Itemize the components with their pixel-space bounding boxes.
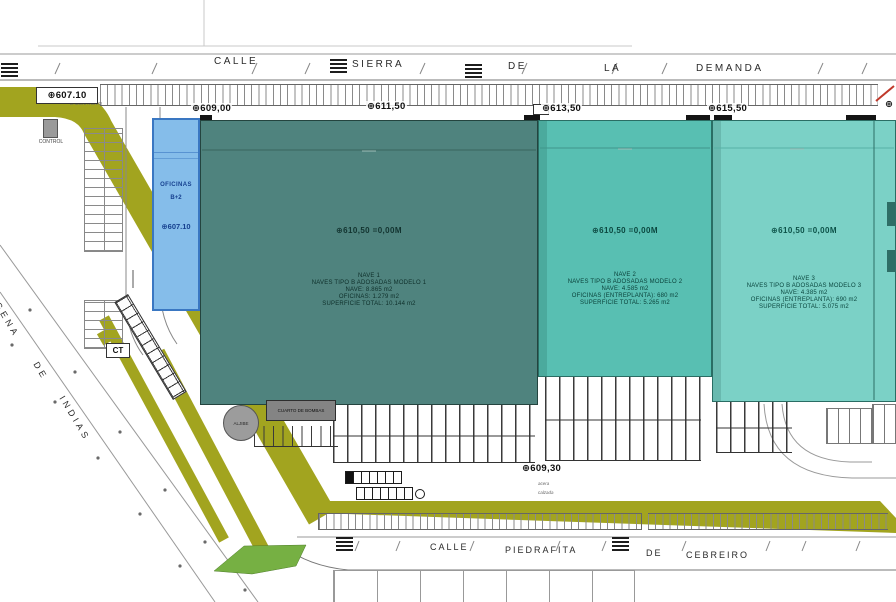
nave3-info-line: NAVES TIPO B ADOSADAS MODELO 3 bbox=[712, 283, 896, 290]
nave3-info-line: SUPERFICIE TOTAL: 5.075 m2 bbox=[712, 304, 896, 311]
bike-rack-symbol bbox=[357, 487, 425, 500]
street-label-bottom: CALLE bbox=[430, 542, 469, 552]
nave1-level: ⊕610,50 =0,00M bbox=[200, 226, 538, 235]
nave1-info-line: OFICINAS: 1.279 m2 bbox=[200, 294, 538, 301]
street-label-bottom: CEBREIRO bbox=[686, 550, 749, 560]
water-tank-aljibe: ALJIBE bbox=[223, 405, 259, 441]
nave2-info-line: NAVES TIPO B ADOSADAS MODELO 2 bbox=[538, 279, 712, 286]
level-marker: ⊕609,30 bbox=[521, 463, 562, 474]
street-label-top: LA bbox=[604, 63, 621, 74]
street-label-top: DE bbox=[508, 61, 527, 72]
control-booth bbox=[43, 119, 58, 138]
nave1-info-line: SUPERFICIE TOTAL: 10.144 m2 bbox=[200, 301, 538, 308]
nave2-info-line: NAVE: 4.585 m2 bbox=[538, 286, 712, 293]
offices-level-marker: ⊕607.10 bbox=[152, 222, 200, 231]
street-label-bottom: PIEDRAFITA bbox=[505, 545, 577, 555]
nave2-info-line: SUPERFICIE TOTAL: 5.265 m2 bbox=[538, 300, 712, 307]
nave2-info-line: NAVE 2 bbox=[538, 272, 712, 279]
dock-door-mark bbox=[200, 115, 212, 120]
dock-door-mark bbox=[887, 202, 896, 226]
dock-door-mark bbox=[524, 115, 540, 120]
control-label: CONTROL bbox=[28, 140, 74, 146]
nave1-info: NAVE 1 NAVES TIPO B ADOSADAS MODELO 1 NA… bbox=[200, 273, 538, 308]
dock-mid-lines bbox=[333, 420, 792, 436]
level-marker-partial: ⊕ bbox=[884, 99, 894, 110]
offices-label: OFICINAS bbox=[152, 182, 200, 188]
dock-door-mark bbox=[846, 115, 876, 120]
nave2-level: ⊕610,50 =0,00M bbox=[538, 226, 712, 235]
section-note: calzada bbox=[538, 490, 554, 495]
offices-floors-label: B+2 bbox=[152, 195, 200, 201]
bike-rack-symbol bbox=[346, 471, 402, 484]
nave3-info-line: NAVE 3 bbox=[712, 276, 896, 283]
section-note: acera bbox=[538, 481, 549, 486]
level-marker: ⊕609,00 bbox=[191, 103, 232, 114]
street-label-top: SIERRA bbox=[352, 59, 404, 70]
nave1-info-line: NAVE 1 bbox=[200, 273, 538, 280]
street-label-top: DEMANDA bbox=[696, 63, 764, 74]
pump-room: CUARTO DE BOMBAS bbox=[266, 400, 336, 421]
nave2-info-line: OFICINAS (ENTREPLANTA): 680 m2 bbox=[538, 293, 712, 300]
level-marker: ⊕607.10 bbox=[36, 87, 98, 104]
street-label-bottom: DE bbox=[646, 548, 663, 558]
nave3-level: ⊕610,50 =0,00M bbox=[712, 226, 896, 235]
level-marker: ⊕615,50 bbox=[707, 103, 748, 114]
transformer-ct-box: CT bbox=[106, 343, 130, 358]
nave1-info-line: NAVES TIPO B ADOSADAS MODELO 1 bbox=[200, 280, 538, 287]
street-label-top: CALLE bbox=[214, 56, 258, 67]
nave1-info-line: NAVE: 8.865 m2 bbox=[200, 287, 538, 294]
dock-door-mark bbox=[686, 115, 710, 120]
dock-door-mark bbox=[714, 115, 732, 120]
level-marker: ⊕611,50 bbox=[366, 101, 407, 112]
nave3-info-line: NAVE: 4.385 m2 bbox=[712, 290, 896, 297]
nave3-info-line: OFICINAS (ENTREPLANTA): 690 m2 bbox=[712, 297, 896, 304]
level-marker: ⊕613,50 bbox=[541, 103, 582, 114]
nave3-info: NAVE 3 NAVES TIPO B ADOSADAS MODELO 3 NA… bbox=[712, 276, 896, 311]
nave2-info: NAVE 2 NAVES TIPO B ADOSADAS MODELO 2 NA… bbox=[538, 272, 712, 307]
dock-door-mark bbox=[887, 250, 896, 272]
site-plan: OFICINAS B+2 ⊕607.10 CONTROL MUESTRAS LA… bbox=[0, 0, 896, 602]
